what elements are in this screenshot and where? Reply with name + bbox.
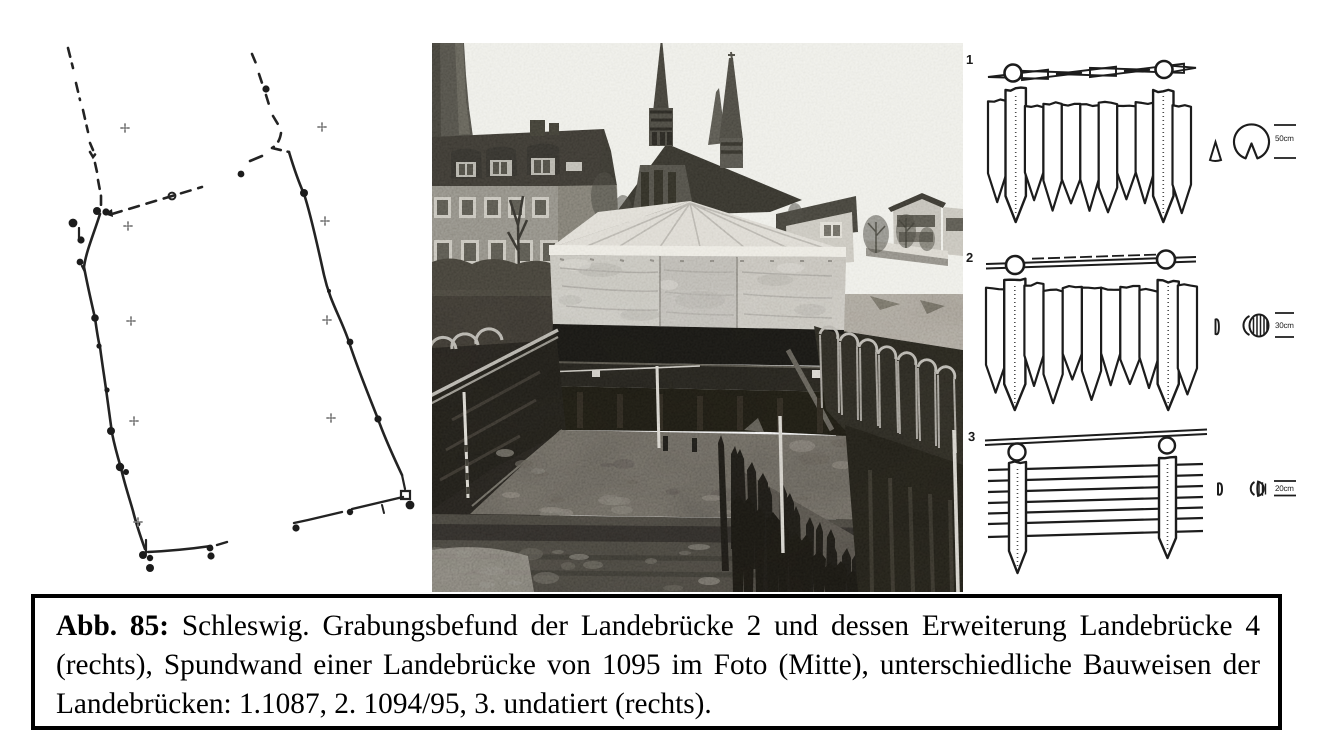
svg-text:2: 2 [966,250,973,265]
svg-text:1: 1 [966,52,973,67]
svg-text:3: 3 [968,429,975,444]
svg-text:30cm: 30cm [1275,321,1294,330]
svg-text:20cm: 20cm [1275,484,1294,493]
svg-text:50cm: 50cm [1275,134,1294,143]
